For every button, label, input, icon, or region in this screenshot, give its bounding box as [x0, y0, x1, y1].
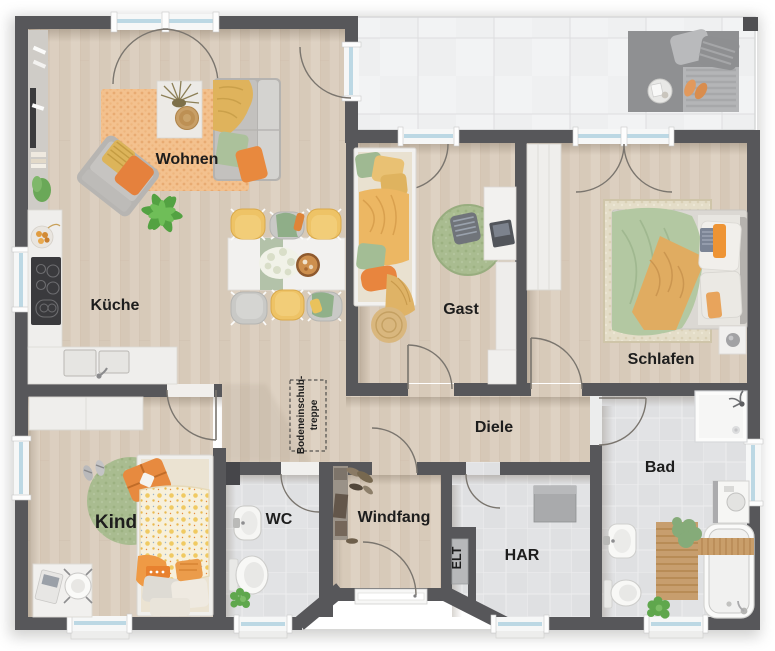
svg-text:ELT: ELT [450, 546, 464, 569]
svg-text:treppe: treppe [309, 399, 320, 430]
svg-text:Wohnen: Wohnen [156, 151, 219, 168]
svg-text:WC: WC [266, 511, 293, 528]
svg-text:Diele: Diele [475, 419, 513, 436]
svg-text:Küche: Küche [91, 297, 140, 314]
svg-text:Bodeneinschub-: Bodeneinschub- [296, 376, 307, 454]
svg-text:Schlafen: Schlafen [628, 351, 695, 368]
svg-text:Bad: Bad [645, 459, 675, 476]
svg-text:Windfang: Windfang [358, 509, 431, 526]
svg-text:HAR: HAR [505, 547, 540, 564]
svg-text:Gast: Gast [443, 301, 479, 318]
svg-text:Kind: Kind [95, 512, 137, 533]
